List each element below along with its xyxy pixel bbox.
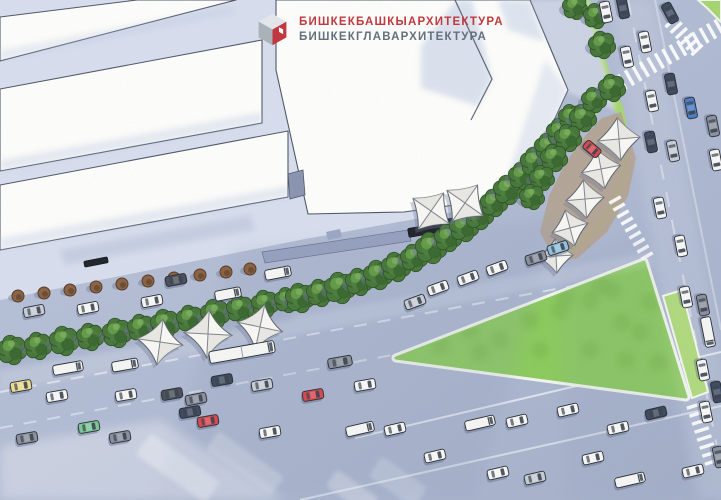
site-plan-rendering: БИШКЕКБАШКЫАРХИТЕКТУРА БИШКЕКГЛАВАРХИТЕК… — [0, 0, 721, 500]
paper-grain — [0, 0, 721, 500]
logo-line1: БИШКЕКБАШКЫАРХИТЕКТУРА — [299, 15, 504, 30]
logo-text: БИШКЕКБАШКЫАРХИТЕКТУРА БИШКЕКГЛАВАРХИТЕК… — [299, 15, 504, 45]
logo-cube-icon — [254, 11, 291, 48]
masterplan-canvas — [0, 0, 721, 500]
logo: БИШКЕКБАШКЫАРХИТЕКТУРА БИШКЕКГЛАВАРХИТЕК… — [254, 11, 504, 48]
logo-line2: БИШКЕКГЛАВАРХИТЕКТУРА — [299, 30, 504, 45]
